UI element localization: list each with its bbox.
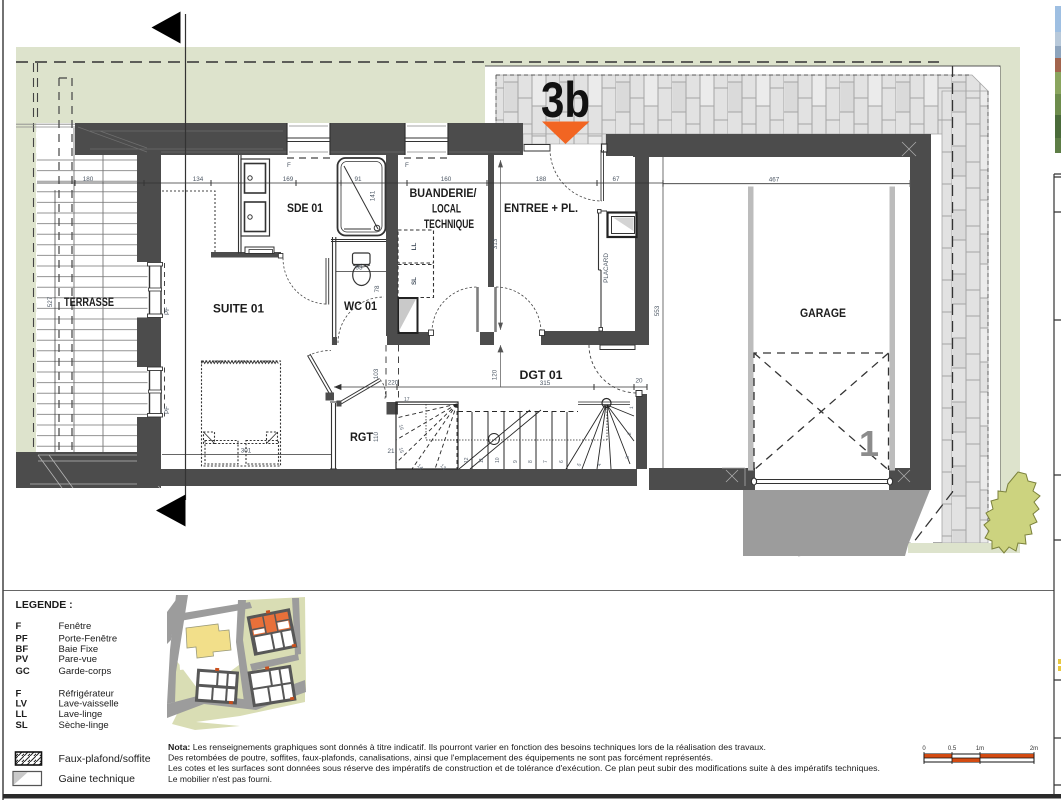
svg-text:TECHNIQUE: TECHNIQUE — [424, 219, 474, 231]
svg-text:20: 20 — [635, 378, 643, 385]
svg-text:141: 141 — [370, 190, 377, 201]
svg-text:1: 1 — [859, 423, 879, 464]
svg-text:10: 10 — [495, 457, 501, 463]
svg-text:Fenêtre: Fenêtre — [59, 621, 92, 632]
svg-text:ENTREE + PL.: ENTREE + PL. — [504, 203, 578, 215]
svg-text:110: 110 — [373, 431, 380, 442]
svg-text:21: 21 — [387, 448, 395, 455]
svg-text:Garde-corps: Garde-corps — [59, 666, 112, 677]
svg-text:BUANDERIE/: BUANDERIE/ — [410, 188, 478, 200]
svg-text:TERRASSE: TERRASSE — [64, 297, 114, 309]
svg-text:PLACARD: PLACARD — [603, 253, 610, 283]
svg-text:180: 180 — [83, 176, 94, 183]
svg-text:103: 103 — [373, 368, 380, 379]
svg-text:3b: 3b — [541, 72, 590, 128]
svg-text:SDE 01: SDE 01 — [287, 203, 324, 215]
svg-text:315: 315 — [540, 380, 551, 387]
svg-text:SUITE 01: SUITE 01 — [213, 304, 265, 316]
svg-text:Pare-vue: Pare-vue — [59, 654, 98, 665]
svg-text:12: 12 — [464, 457, 470, 463]
svg-text:Nota: Les renseignements graph: Nota: Les renseignements graphiques sont… — [168, 742, 766, 752]
svg-text:134: 134 — [193, 176, 204, 183]
svg-text:F: F — [287, 162, 291, 169]
svg-text:67: 67 — [612, 176, 620, 183]
svg-text:7: 7 — [543, 460, 549, 463]
svg-text:F: F — [405, 162, 409, 169]
svg-text:Des retombées de poutre, soffi: Des retombées de poutre, soffites, faux-… — [168, 753, 713, 763]
svg-text:WC 01: WC 01 — [344, 301, 378, 313]
svg-text:78: 78 — [374, 285, 381, 293]
svg-text:17: 17 — [404, 397, 410, 403]
svg-text:PV: PV — [16, 654, 29, 665]
svg-text:Les cotes et les surfaces sont: Les cotes et les surfaces sont données s… — [168, 763, 880, 773]
svg-text:PF: PF — [164, 307, 171, 315]
svg-text:Le mobilier n'est pas fourni.: Le mobilier n'est pas fourni. — [168, 774, 272, 784]
svg-text:SL: SL — [411, 277, 418, 285]
svg-text:91: 91 — [354, 176, 362, 183]
svg-text:467: 467 — [769, 177, 780, 184]
svg-text:0.5: 0.5 — [948, 746, 957, 752]
svg-text:553: 553 — [654, 305, 661, 316]
svg-text:1m: 1m — [976, 746, 984, 752]
svg-text:Faux-plafond/soffite: Faux-plafond/soffite — [59, 753, 151, 765]
svg-text:Sèche-linge: Sèche-linge — [59, 720, 109, 731]
svg-text:Gaine technique: Gaine technique — [59, 773, 136, 785]
svg-text:93: 93 — [355, 265, 363, 272]
svg-text:LL: LL — [411, 243, 418, 251]
svg-text:169: 169 — [283, 176, 294, 183]
svg-text:188: 188 — [536, 176, 547, 183]
svg-text:9: 9 — [513, 460, 519, 463]
svg-text:GC: GC — [16, 666, 30, 677]
svg-text:220: 220 — [388, 380, 399, 387]
svg-text:LL: LL — [16, 709, 28, 720]
svg-text:527: 527 — [47, 296, 54, 307]
svg-text:11: 11 — [479, 458, 485, 463]
svg-text:LOCAL: LOCAL — [432, 204, 461, 216]
svg-text:GARAGE: GARAGE — [800, 308, 846, 320]
svg-text:RGT: RGT — [350, 432, 373, 444]
svg-text:F: F — [16, 621, 22, 632]
svg-text:Lave-linge: Lave-linge — [59, 709, 103, 720]
svg-text:SL: SL — [16, 720, 28, 731]
svg-text:120: 120 — [492, 369, 499, 380]
svg-text:LEGENDE :: LEGENDE : — [16, 599, 73, 611]
svg-text:2m: 2m — [1030, 746, 1038, 752]
svg-text:PF: PF — [164, 406, 171, 414]
svg-text:8: 8 — [528, 460, 534, 463]
svg-text:6: 6 — [559, 460, 565, 463]
svg-text:313: 313 — [492, 238, 499, 249]
svg-text:160: 160 — [441, 176, 452, 183]
